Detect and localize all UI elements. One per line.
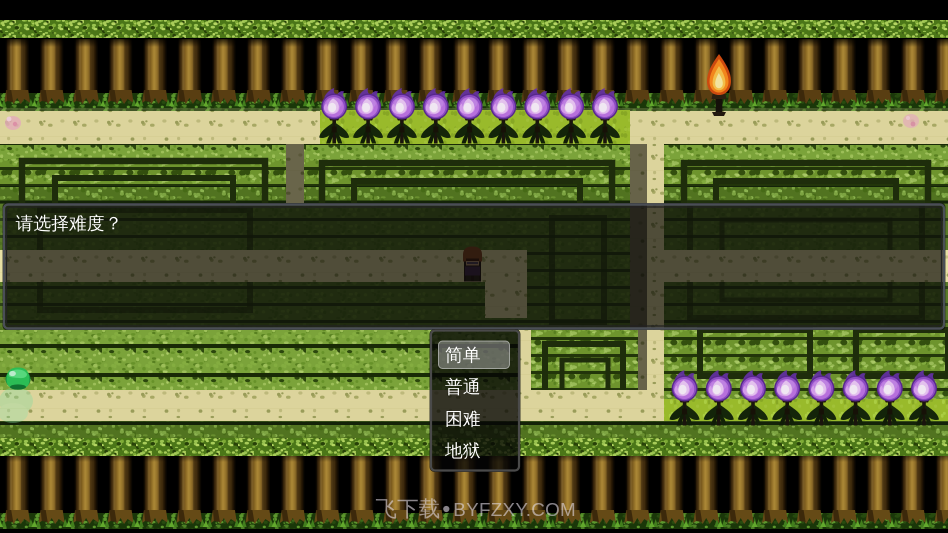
svg-text:BYFZXY.COM: BYFZXY.COM [453,499,576,520]
